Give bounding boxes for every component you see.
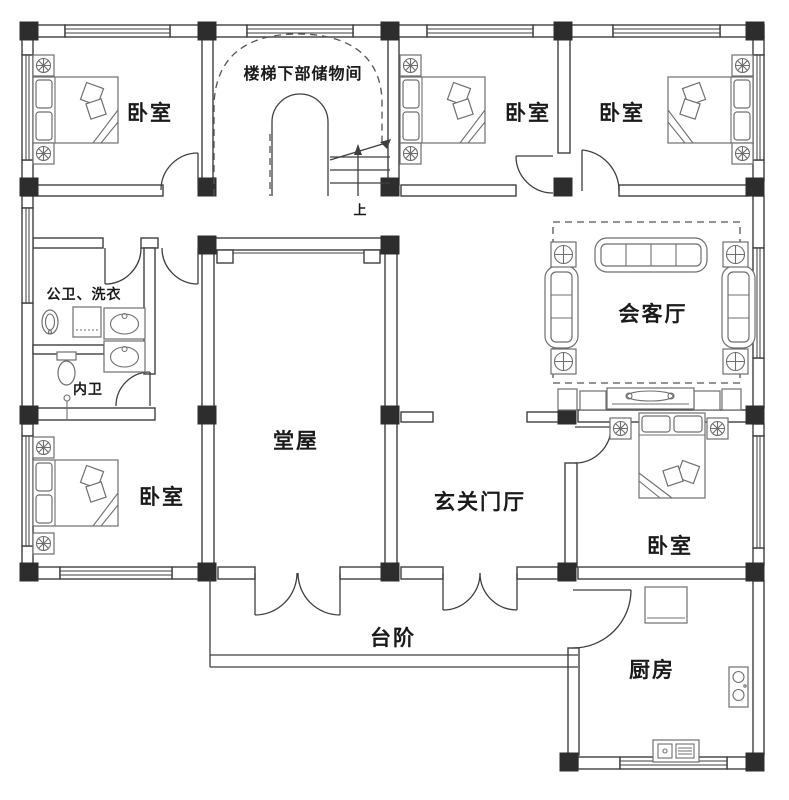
room-label-kitchen: 厨房	[629, 654, 675, 684]
bed-top-left	[33, 77, 118, 143]
bed-bottom-left	[33, 460, 118, 526]
room-label-bedroom-top-left: 卧室	[127, 97, 173, 127]
stair-up-label: 上	[353, 200, 366, 219]
tv-cabinet	[558, 388, 741, 410]
room-label-entrance-hall: 玄关门厅	[434, 486, 526, 516]
room-label-bedroom-bottom-left: 卧室	[139, 481, 185, 511]
door-bath-private	[116, 372, 150, 406]
door-bedroom-top-right	[582, 150, 619, 191]
bathroom-fixtures	[42, 307, 145, 420]
room-label-bath-public: 公卫、洗衣	[47, 284, 122, 304]
room-label-bath-private: 内卫	[73, 379, 103, 399]
sofa-right	[722, 266, 755, 348]
door-bath-public	[105, 248, 141, 284]
room-label-bedroom-right: 卧室	[647, 530, 693, 560]
kitchen-sink	[653, 740, 699, 762]
door-main-hall-double	[255, 573, 340, 615]
room-label-stair-storage: 楼梯下部储物间	[243, 60, 362, 84]
sink-counter	[104, 308, 145, 372]
door-corridor	[162, 248, 198, 284]
room-label-steps: 台阶	[370, 622, 416, 652]
fridge	[645, 587, 687, 623]
bed-top-right	[668, 77, 753, 143]
door-bedroom-right	[575, 427, 611, 463]
toilet-public	[42, 310, 58, 334]
stove	[729, 667, 748, 707]
sofa-top	[595, 238, 707, 272]
bed-right	[639, 413, 705, 498]
door-entrance-double	[443, 573, 517, 610]
room-label-bedroom-top-middle: 卧室	[505, 97, 551, 127]
door-bedroom-top-left	[161, 153, 198, 190]
sofa-left	[545, 266, 578, 348]
door-bedroom-top-middle	[516, 156, 553, 193]
room-label-living-room: 会客厅	[619, 298, 688, 328]
door-kitchen	[573, 590, 631, 648]
room-label-bedroom-top-right: 卧室	[599, 97, 645, 127]
washing-machine	[73, 307, 101, 337]
bed-top-middle	[400, 77, 485, 143]
room-label-main-hall: 堂屋	[273, 425, 319, 455]
floor-plan: 卧室 楼梯下部储物间 卧室 卧室 上 公卫、洗衣 内卫 会客厅 堂屋 卧室 玄关…	[0, 0, 789, 800]
storage-under-stairs-outline	[214, 34, 382, 196]
